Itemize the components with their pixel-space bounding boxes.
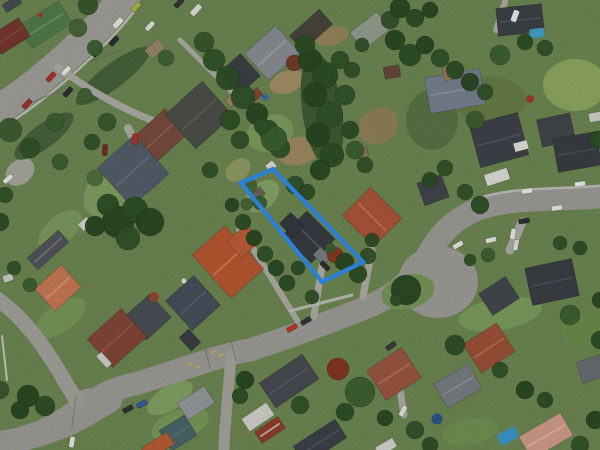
- aerial-map-viewport[interactable]: [0, 0, 600, 450]
- photo-grain-texture: [0, 0, 600, 450]
- aerial-photo: [0, 0, 600, 450]
